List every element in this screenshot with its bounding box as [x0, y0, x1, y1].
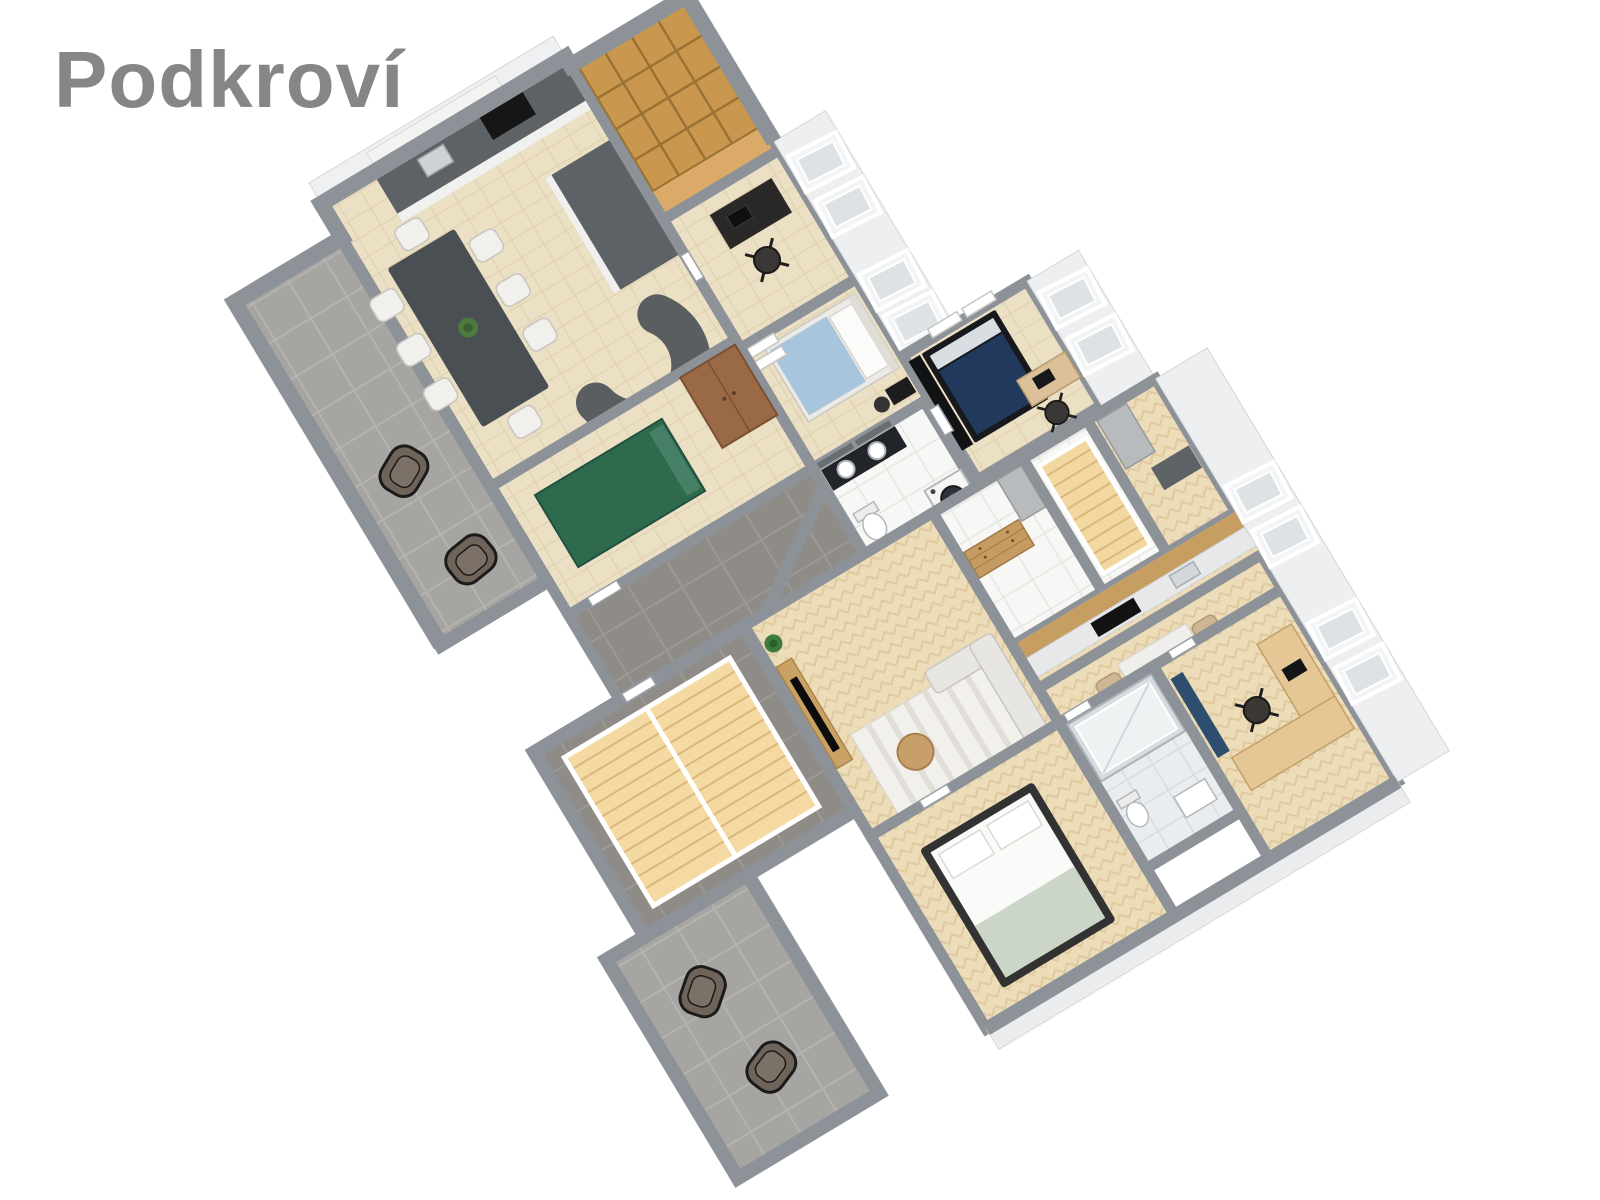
page: Podkroví	[0, 0, 1600, 1200]
floor-plan-svg	[0, 0, 1600, 1200]
floor-plan	[185, 0, 1462, 1199]
page-title: Podkroví	[54, 34, 404, 126]
